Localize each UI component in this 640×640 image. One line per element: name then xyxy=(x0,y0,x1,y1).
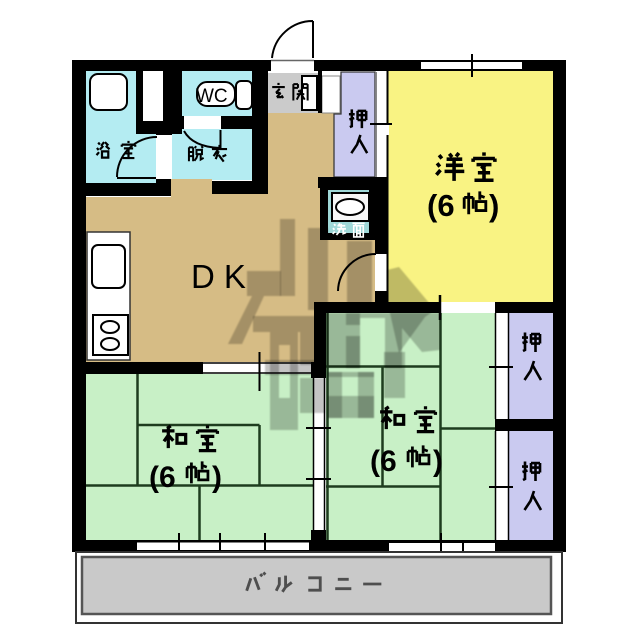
svg-text:(6: (6 xyxy=(427,188,455,223)
svg-text:): ) xyxy=(212,461,222,494)
svg-text:WC: WC xyxy=(196,86,228,107)
svg-text:(6: (6 xyxy=(149,461,176,494)
svg-text:DK: DK xyxy=(191,258,255,295)
svg-text:(6: (6 xyxy=(370,445,397,478)
svg-text:): ) xyxy=(433,445,443,478)
svg-text:): ) xyxy=(489,188,499,223)
